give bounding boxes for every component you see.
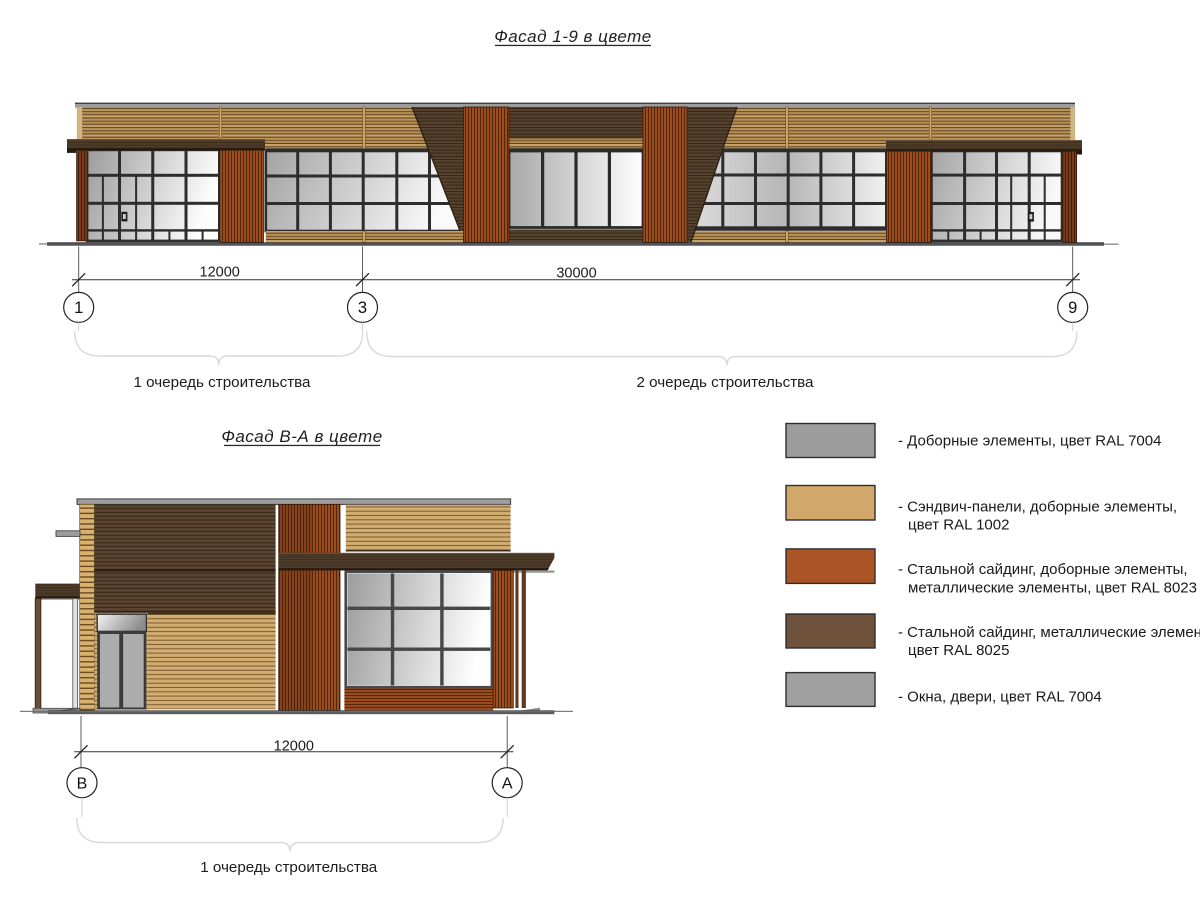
- svg-text:А: А: [502, 776, 513, 793]
- svg-text:цвет RAL 8025: цвет RAL 8025: [908, 642, 1009, 659]
- svg-text:цвет RAL 1002: цвет RAL 1002: [908, 517, 1009, 534]
- svg-text:2 очередь строительства: 2 очередь строительства: [636, 374, 814, 391]
- svg-text:3: 3: [358, 299, 367, 317]
- svg-text:30000: 30000: [556, 265, 596, 281]
- svg-text:Фасад 1-9 в цвете: Фасад 1-9 в цвете: [494, 27, 652, 46]
- svg-text:металлические элементы, цвет R: металлические элементы, цвет RAL 8023: [908, 580, 1197, 597]
- svg-text:- Стальной сайдинг, доборные э: - Стальной сайдинг, доборные элементы,: [898, 561, 1188, 578]
- svg-text:- Стальной сайдинг, металличес: - Стальной сайдинг, металлические элемен…: [898, 624, 1200, 641]
- svg-text:1 очередь строительства: 1 очередь строительства: [200, 859, 378, 876]
- svg-text:Фасад В-А в цвете: Фасад В-А в цвете: [221, 427, 382, 446]
- svg-text:В: В: [77, 776, 88, 793]
- svg-text:- Сэндвич-панели, доборные эле: - Сэндвич-панели, доборные элементы,: [898, 499, 1177, 516]
- svg-text:12000: 12000: [274, 738, 314, 754]
- svg-text:- Окна, двери, цвет RAL 7004: - Окна, двери, цвет RAL 7004: [898, 689, 1102, 706]
- svg-text:9: 9: [1068, 299, 1077, 317]
- svg-text:1: 1: [74, 299, 83, 317]
- svg-text:- Доборные элементы, цвет RAL: - Доборные элементы, цвет RAL 7004: [898, 433, 1161, 450]
- svg-text:1 очередь строительства: 1 очередь строительства: [133, 374, 311, 391]
- svg-text:12000: 12000: [200, 264, 240, 280]
